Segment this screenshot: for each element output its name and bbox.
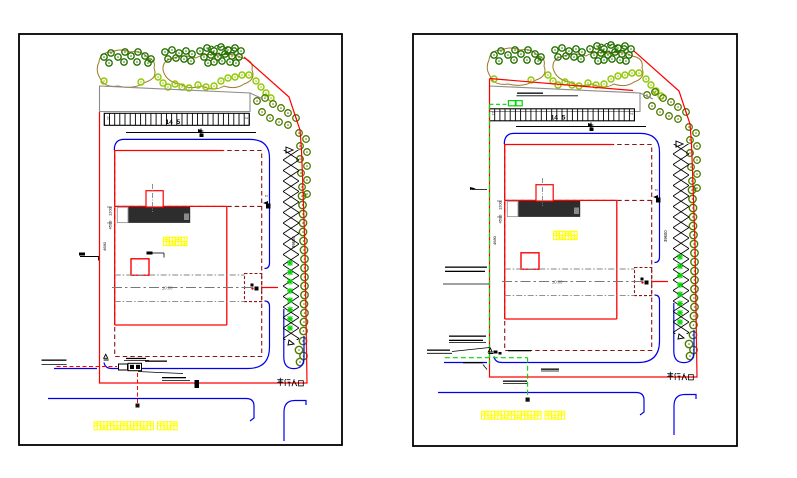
svg-text:1200: 1200 (497, 200, 502, 210)
svg-text:4680: 4680 (102, 241, 107, 251)
svg-text:11: 11 (107, 116, 111, 120)
svg-text:4500: 4500 (107, 220, 112, 230)
svg-text:±0.00: ±0.00 (552, 279, 563, 284)
svg-text:11: 11 (492, 112, 496, 116)
svg-text:4500: 4500 (497, 214, 502, 224)
svg-text:39600: 39600 (291, 236, 296, 248)
svg-text:14: 14 (166, 119, 174, 126)
svg-text:14: 14 (551, 115, 559, 122)
svg-text:5: 5 (562, 115, 566, 122)
svg-text:4680: 4680 (492, 235, 497, 245)
svg-text:±0.00: ±0.00 (162, 285, 173, 290)
svg-text:1200: 1200 (107, 206, 112, 216)
svg-text:5: 5 (177, 119, 181, 126)
svg-text:39600: 39600 (663, 230, 668, 242)
